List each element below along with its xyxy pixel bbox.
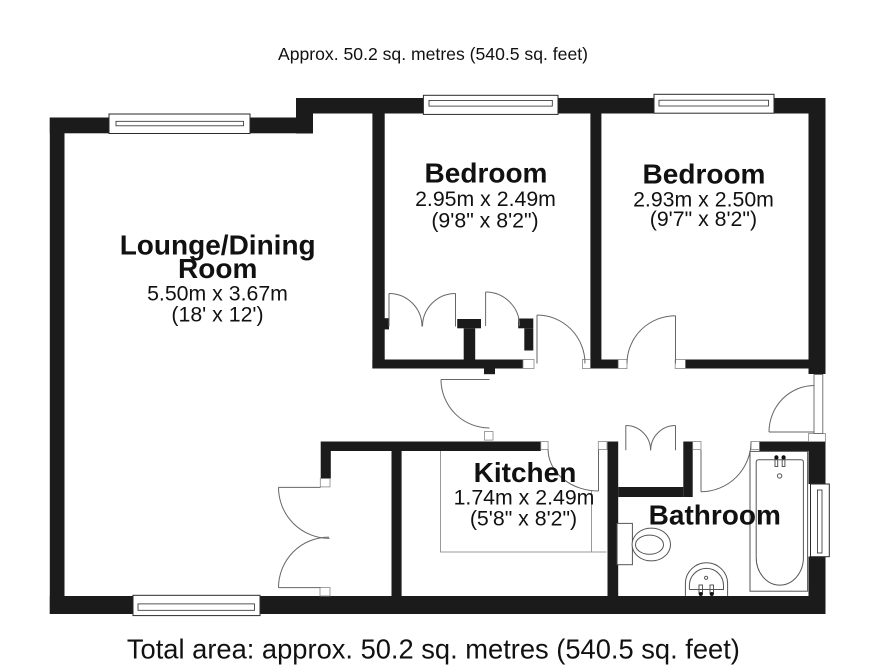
svg-text:Kitchen: Kitchen	[474, 457, 577, 488]
svg-text:(9'7" x 8'2"): (9'7" x 8'2")	[650, 207, 757, 231]
svg-text:(9'8" x 8'2"): (9'8" x 8'2")	[431, 209, 538, 233]
svg-text:Room: Room	[178, 253, 257, 284]
svg-text:(18' x 12'): (18' x 12')	[171, 302, 263, 326]
svg-text:Bedroom: Bedroom	[643, 159, 766, 190]
svg-text:Bathroom: Bathroom	[649, 500, 781, 531]
svg-text:Bedroom: Bedroom	[425, 158, 548, 189]
svg-text:(5'8" x 8'2"): (5'8" x 8'2")	[470, 506, 577, 530]
svg-text:Approx. 50.2 sq. metres (540.5: Approx. 50.2 sq. metres (540.5 sq. feet)	[278, 44, 588, 64]
svg-text:Total area: approx. 50.2 sq. m: Total area: approx. 50.2 sq. metres (540…	[127, 633, 740, 664]
